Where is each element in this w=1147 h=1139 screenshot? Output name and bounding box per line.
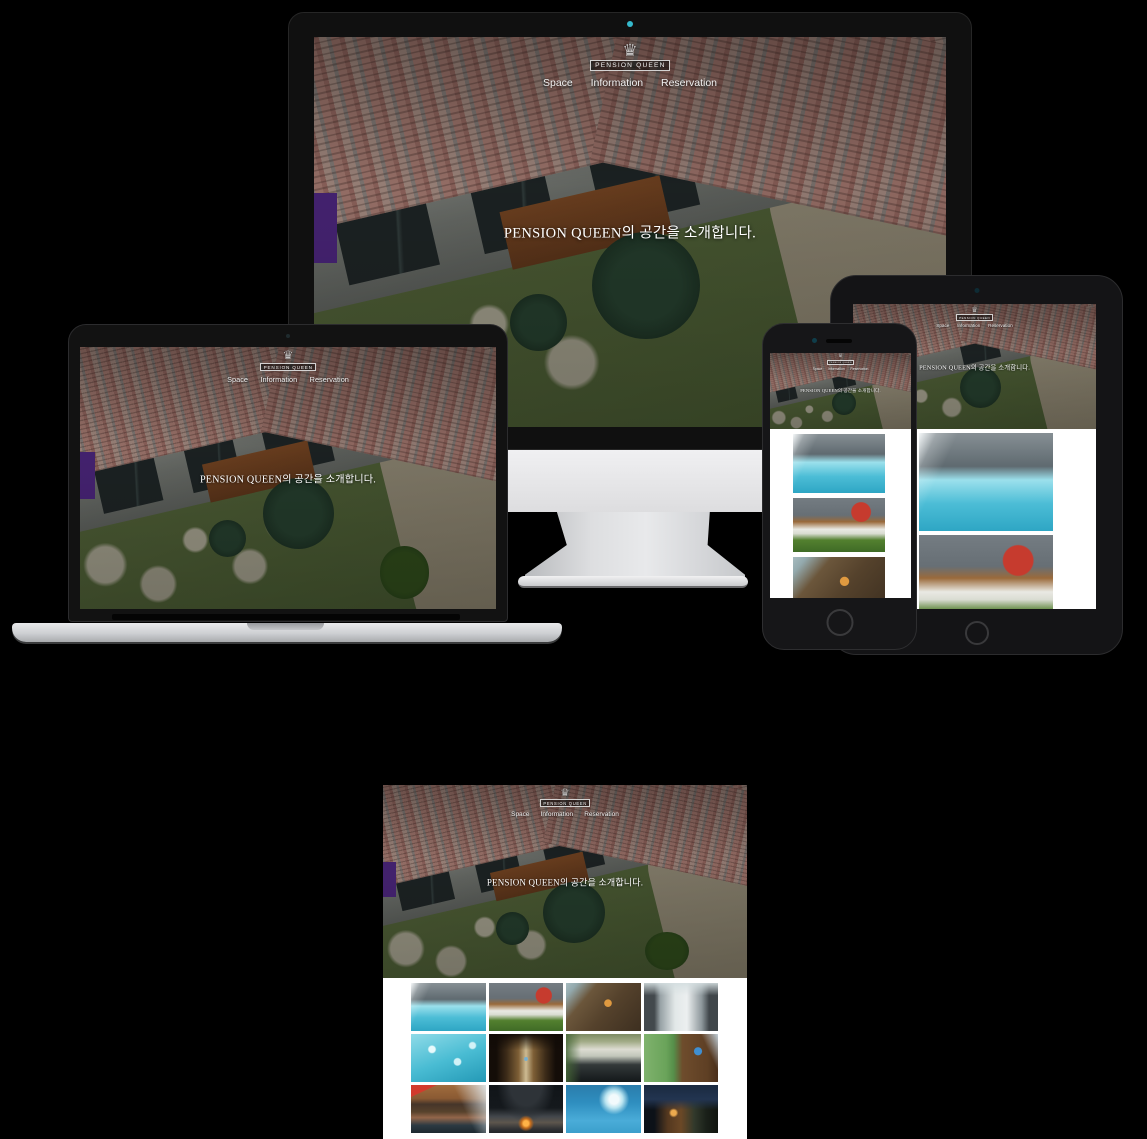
gallery-photo-red-awning-entrance[interactable] [411, 1085, 486, 1133]
main-nav: Space Information Reservation [813, 367, 869, 371]
laptop-lid-notch [247, 623, 324, 630]
main-nav: Space Information Reservation [511, 811, 619, 818]
phone-camera-icon [812, 338, 817, 343]
hero-ui: ♛ PENSION QUEEN Space Information Reserv… [80, 347, 496, 609]
logo-label: PENSION QUEEN [956, 314, 992, 321]
gallery-photo-pool-waterfall[interactable] [793, 434, 885, 493]
nav-item-space[interactable]: Space [813, 367, 823, 371]
queen-crest-icon: ♛ [622, 42, 637, 59]
nav-item-information[interactable]: Information [260, 375, 297, 384]
gallery-photo-lawn-loungers-red-parasol[interactable] [489, 983, 564, 1031]
site-hero: ♛ PENSION QUEEN Space Information Reserv… [383, 785, 747, 978]
tablet-camera-icon [974, 288, 979, 293]
tablet-home-button [965, 621, 989, 645]
site-hero: ♛ PENSION QUEEN Space Information Reserv… [80, 347, 496, 609]
browser-page-view: ♛ PENSION QUEEN Space Information Reserv… [383, 785, 747, 1139]
gallery-photo-sparkling-pool-water[interactable] [411, 1034, 486, 1082]
gallery-photo-resort-sign-hillside[interactable] [644, 1034, 719, 1082]
laptop-screen: ♛ PENSION QUEEN Space Information Reserv… [80, 347, 496, 609]
gallery-photo-pension-queen-sign-wall[interactable] [566, 983, 641, 1031]
nav-item-reservation[interactable]: Reservation [850, 367, 868, 371]
laptop-lid: ♛ PENSION QUEEN Space Information Reserv… [68, 324, 508, 622]
site-logo[interactable]: ♛ PENSION QUEEN [956, 306, 992, 321]
phone-home-button [826, 609, 853, 636]
gallery-photo-pool-waterfall[interactable] [919, 433, 1053, 531]
tablet-gallery-column [919, 433, 1053, 609]
nav-item-space[interactable]: Space [936, 323, 949, 328]
gallery-photo-lawn-loungers-red-parasol[interactable] [919, 535, 1053, 609]
responsive-mockup-canvas: ♛ PENSION QUEEN Space Information Reserv… [0, 0, 1147, 1139]
logo-label: PENSION QUEEN [260, 363, 317, 371]
hero-heading: PENSION QUEEN의 공간을 소개합니다. [80, 471, 496, 486]
gallery-photo-night-dome-firepit[interactable] [489, 1085, 564, 1133]
logo-label: PENSION QUEEN [540, 799, 590, 807]
site-hero: ♛ PENSION QUEEN Space Information Reserv… [770, 353, 911, 429]
nav-item-information[interactable]: Information [591, 77, 644, 89]
gallery-photo-pension-queen-sign-wall[interactable] [793, 557, 885, 598]
nav-item-space[interactable]: Space [511, 811, 529, 818]
phone-device: ♛ PENSION QUEEN Space Information Reserv… [762, 323, 917, 650]
webcam-dot-icon [627, 21, 633, 27]
nav-item-reservation[interactable]: Reservation [584, 811, 619, 818]
hero-heading: PENSION QUEEN의 공간을 소개합니다. [770, 388, 911, 394]
gallery-photo-wood-corridor-lights[interactable] [489, 1034, 564, 1082]
monitor-stand-neck [525, 512, 745, 578]
nav-item-space[interactable]: Space [543, 77, 573, 89]
logo-label: PENSION QUEEN [827, 360, 854, 365]
site-logo[interactable]: ♛ PENSION QUEEN [260, 350, 317, 371]
hero-heading: PENSION QUEEN의 공간을 소개합니다. [383, 875, 747, 888]
hero-ui: ♛ PENSION QUEEN Space Information Reserv… [383, 785, 747, 978]
main-nav: Space Information Reservation [936, 323, 1012, 328]
nav-item-reservation[interactable]: Reservation [661, 77, 717, 89]
queen-crest-icon: ♛ [838, 354, 843, 359]
gallery-photo-lawn-loungers-red-parasol[interactable] [793, 498, 885, 552]
gallery-photo-pool-splash[interactable] [566, 1085, 641, 1133]
phone-screen: ♛ PENSION QUEEN Space Information Reserv… [770, 353, 911, 598]
site-logo[interactable]: ♛ PENSION QUEEN [540, 788, 590, 808]
gallery-grid [411, 983, 718, 1133]
laptop-camera-icon [286, 334, 290, 338]
logo-label: PENSION QUEEN [590, 60, 670, 71]
gallery-photo-night-exterior-lights[interactable] [644, 1085, 719, 1133]
queen-crest-icon: ♛ [560, 788, 569, 799]
hero-heading: PENSION QUEEN의 공간을 소개합니다. [314, 222, 946, 243]
nav-item-reservation[interactable]: Reservation [988, 323, 1013, 328]
laptop-base [12, 623, 562, 642]
gallery-photo-glass-terrace-reflection[interactable] [566, 1034, 641, 1082]
phone-speaker [826, 339, 852, 343]
laptop-hinge [112, 614, 460, 620]
hero-ui: ♛ PENSION QUEEN Space Information Reserv… [770, 353, 911, 429]
gallery-photo-pool-waterfall[interactable] [411, 983, 486, 1031]
site-logo[interactable]: ♛ PENSION QUEEN [590, 42, 670, 71]
main-nav: Space Information Reservation [543, 77, 717, 89]
queen-crest-icon: ♛ [283, 350, 294, 362]
nav-item-information[interactable]: Information [541, 811, 574, 818]
monitor-stand-base [518, 576, 748, 588]
queen-crest-icon: ♛ [971, 306, 978, 313]
nav-item-information[interactable]: Information [957, 323, 980, 328]
nav-item-reservation[interactable]: Reservation [310, 375, 349, 384]
main-nav: Space Information Reservation [227, 375, 349, 384]
gallery-photo-courtyard-loungers-alley[interactable] [644, 983, 719, 1031]
nav-item-space[interactable]: Space [227, 375, 248, 384]
site-logo[interactable]: ♛ PENSION QUEEN [827, 354, 854, 364]
nav-item-information[interactable]: Information [828, 367, 845, 371]
phone-gallery-column [793, 434, 885, 598]
